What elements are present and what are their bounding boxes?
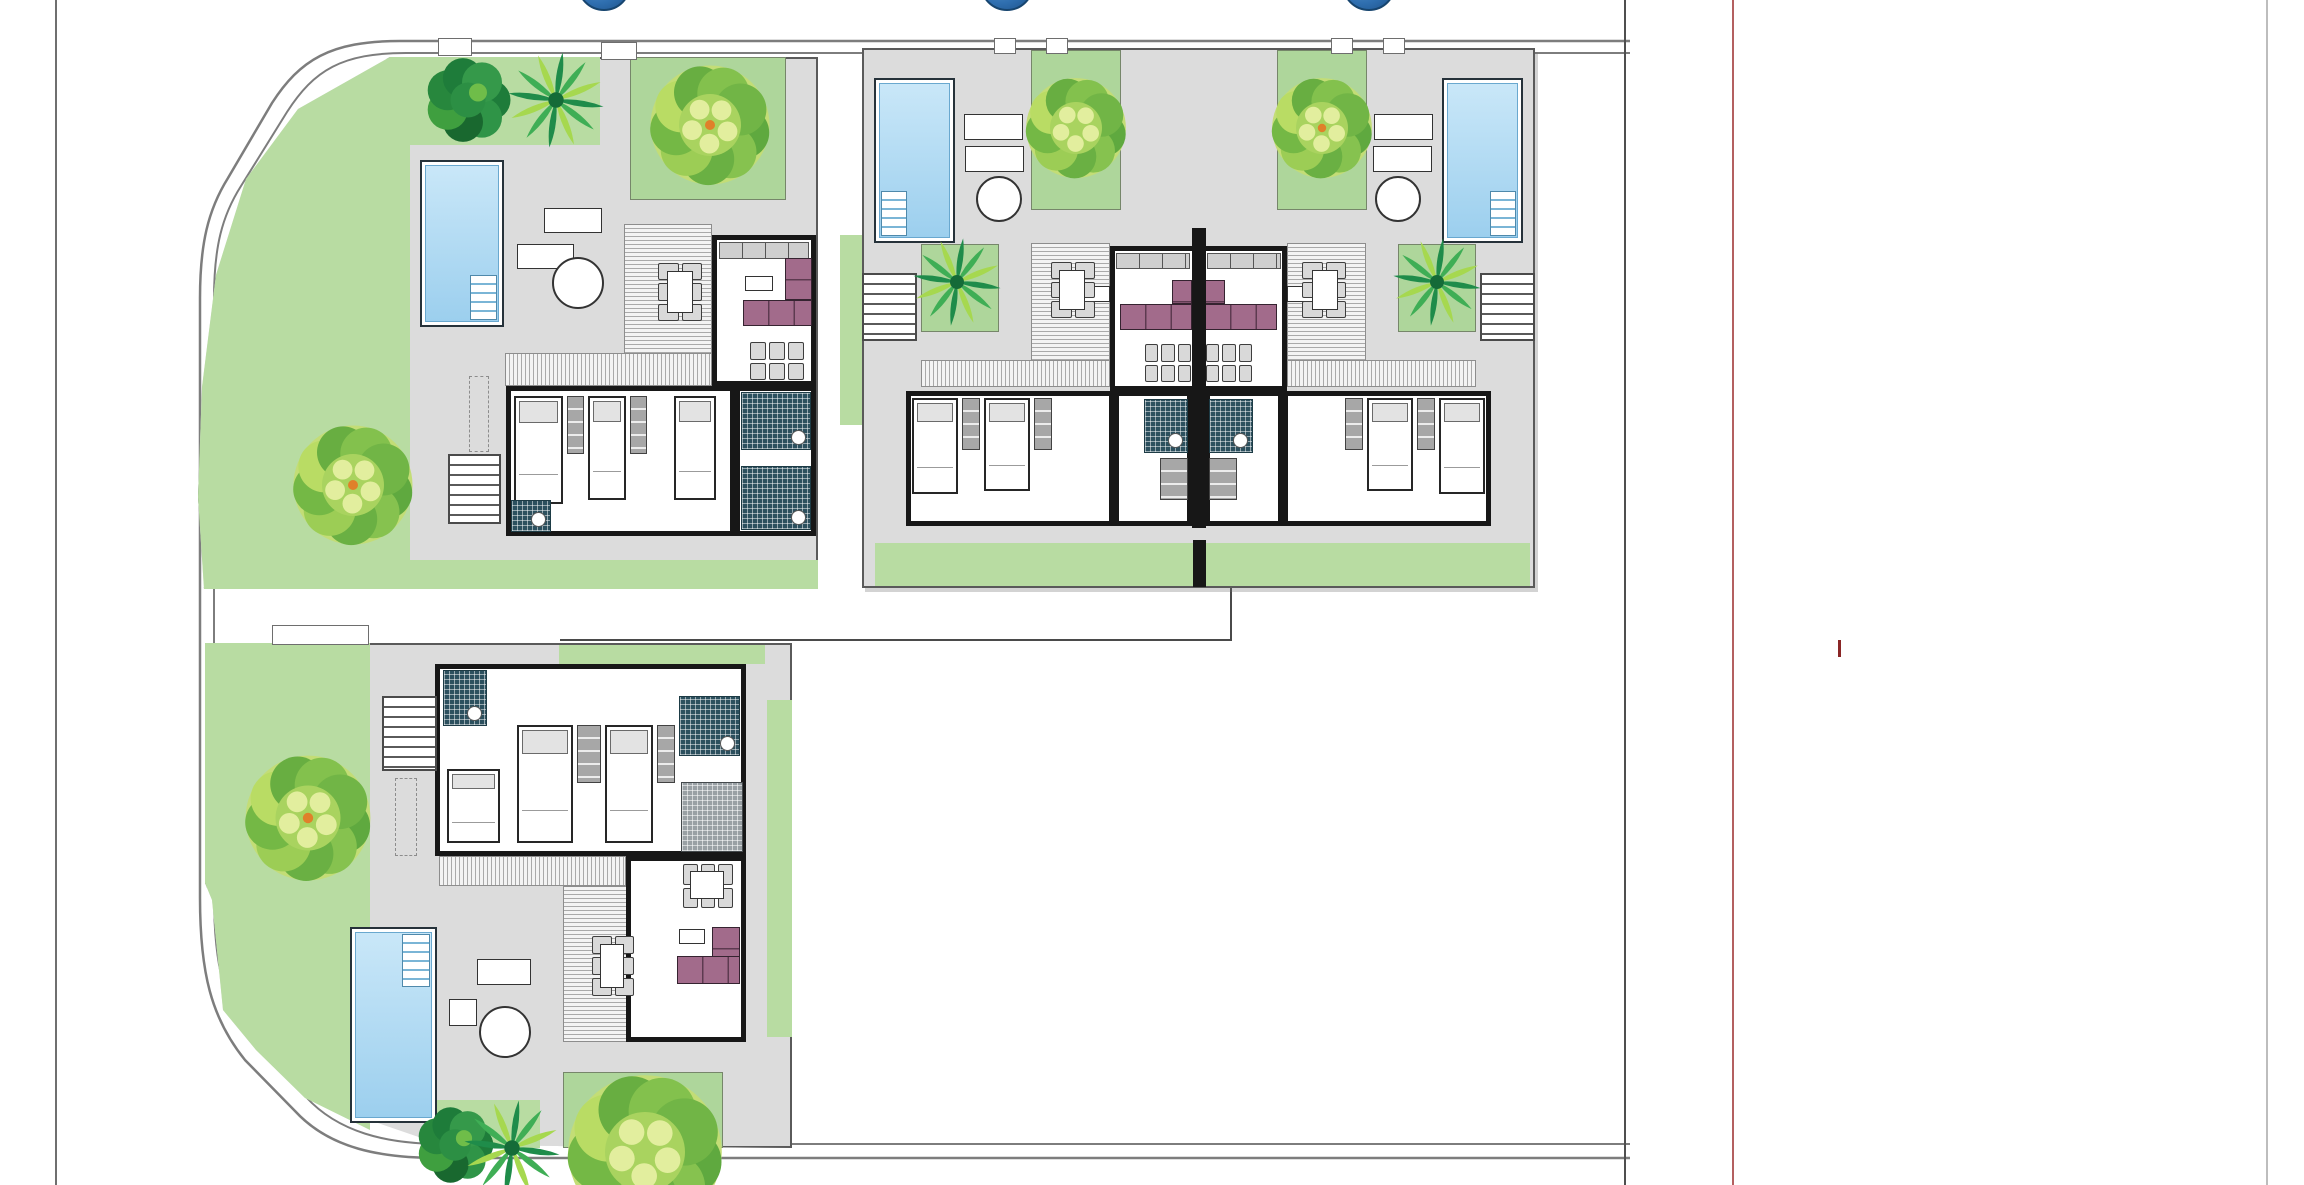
bed	[605, 725, 653, 843]
sofa	[743, 300, 812, 326]
table	[667, 271, 693, 313]
tree-icon	[1270, 76, 1374, 180]
gate	[272, 625, 369, 645]
wood-deck	[1287, 360, 1476, 387]
dining-chairs	[750, 342, 804, 380]
wardrobe	[567, 396, 584, 454]
kitchen-counter	[1207, 253, 1281, 269]
tree-icon	[648, 63, 772, 187]
swimming-pool	[350, 927, 437, 1123]
chair	[1206, 344, 1219, 362]
wardrobe	[1417, 398, 1435, 450]
palm-icon	[913, 238, 1001, 326]
red-boundary-line	[1732, 0, 1734, 1185]
sun-lounger	[1374, 114, 1433, 140]
sofa	[1120, 304, 1192, 330]
chair	[750, 342, 766, 360]
chair	[769, 342, 785, 360]
chair	[750, 363, 766, 381]
pool-water	[879, 83, 950, 238]
pool-steps	[470, 275, 497, 320]
garden-south-top	[559, 645, 765, 664]
bed	[984, 398, 1030, 491]
pool-steps	[402, 934, 430, 987]
chair	[1145, 365, 1158, 383]
bush-icon	[418, 50, 518, 150]
kitchen-counter	[1116, 253, 1190, 269]
chair	[1145, 344, 1158, 362]
gate	[1331, 38, 1353, 54]
dining-chairs	[1145, 344, 1191, 382]
chair	[1161, 365, 1174, 383]
chair	[788, 342, 804, 360]
tree-icon	[565, 1072, 725, 1185]
outdoor-table	[1375, 176, 1421, 222]
kitchen-tiles	[681, 782, 743, 852]
chair	[1222, 344, 1235, 362]
wardrobe	[577, 725, 601, 783]
table	[600, 944, 624, 988]
pool-steps	[1490, 191, 1516, 236]
wardrobe	[1209, 458, 1237, 500]
chair	[1206, 365, 1219, 383]
sofa	[1172, 280, 1192, 304]
table	[690, 871, 724, 899]
sun-lounger	[965, 146, 1024, 172]
sofa	[677, 956, 740, 984]
staircase	[448, 454, 501, 524]
bathroom-tiles	[443, 670, 487, 726]
chair	[1178, 344, 1191, 362]
gate	[601, 42, 637, 60]
gate	[1383, 38, 1405, 54]
table	[1059, 270, 1085, 310]
sun-lounger	[544, 208, 602, 233]
bed	[1367, 398, 1413, 491]
wood-deck	[921, 360, 1110, 387]
pool-steps	[881, 191, 907, 236]
table	[1312, 270, 1338, 310]
dining-chairs	[1206, 344, 1252, 382]
bathroom-tiles	[1144, 399, 1188, 453]
chair	[1222, 365, 1235, 383]
chair	[1161, 344, 1174, 362]
wardrobe	[962, 398, 980, 450]
tree-icon	[291, 423, 415, 547]
gate	[1046, 38, 1068, 54]
swimming-pool	[874, 78, 955, 243]
chair	[769, 363, 785, 381]
wardrobe	[1034, 398, 1052, 450]
garden-south-strip	[395, 560, 818, 589]
bed	[517, 725, 573, 843]
swimming-pool	[1442, 78, 1523, 243]
bathroom-tiles	[1209, 399, 1253, 453]
tree-icon	[1024, 76, 1128, 180]
red-tick	[1838, 640, 1841, 657]
bed	[514, 396, 563, 504]
wall	[1193, 540, 1206, 587]
pool-water	[425, 165, 499, 322]
fence-line-h	[560, 639, 1231, 641]
table	[449, 999, 477, 1026]
wardrobe	[1345, 398, 1363, 450]
pool-water	[1447, 83, 1518, 238]
bed	[447, 769, 500, 843]
chair	[1239, 344, 1252, 362]
wood-deck	[439, 856, 626, 886]
palm-icon	[508, 52, 604, 148]
swimming-pool	[420, 160, 504, 327]
bed	[1439, 398, 1485, 494]
page-edge-left	[55, 0, 57, 1185]
wall	[1192, 228, 1206, 528]
bed	[588, 396, 626, 500]
entry-path	[395, 778, 417, 856]
page-edge-right	[2266, 0, 2268, 1185]
chair	[1178, 365, 1191, 383]
staircase	[862, 273, 917, 341]
bathroom-tiles	[741, 466, 811, 530]
gate	[994, 38, 1016, 54]
bathroom-tiles	[679, 696, 740, 756]
sun-lounger	[477, 959, 531, 985]
palm-icon	[1393, 238, 1481, 326]
garden-south-col	[767, 700, 792, 1037]
table	[679, 929, 705, 944]
site-plan	[0, 0, 2304, 1185]
outdoor-table	[479, 1006, 531, 1058]
staircase	[382, 696, 437, 771]
staircase	[1480, 273, 1535, 341]
outdoor-table	[552, 257, 604, 309]
sofa	[785, 258, 812, 300]
sofa	[1205, 304, 1277, 330]
pool-water	[355, 932, 432, 1118]
sofa	[1205, 280, 1225, 304]
entry-path	[469, 376, 489, 452]
wardrobe	[630, 396, 647, 454]
wardrobe	[1160, 458, 1188, 500]
bed	[674, 396, 716, 500]
table	[745, 276, 773, 291]
wardrobe	[657, 725, 675, 783]
bed	[912, 398, 958, 494]
fence-line-v	[1230, 588, 1232, 641]
palm-icon	[464, 1100, 560, 1185]
outdoor-table	[976, 176, 1022, 222]
tree-icon	[243, 753, 373, 883]
sun-lounger	[964, 114, 1023, 140]
bathroom-tiles	[511, 500, 551, 532]
sun-lounger	[1373, 146, 1432, 172]
garden-gap-strip	[840, 235, 862, 425]
chair	[1239, 365, 1252, 383]
chair	[788, 363, 804, 381]
parcel-line	[1624, 0, 1626, 1185]
kitchen-counter	[719, 242, 809, 259]
wood-deck	[505, 353, 712, 386]
bathroom-tiles	[741, 392, 811, 450]
